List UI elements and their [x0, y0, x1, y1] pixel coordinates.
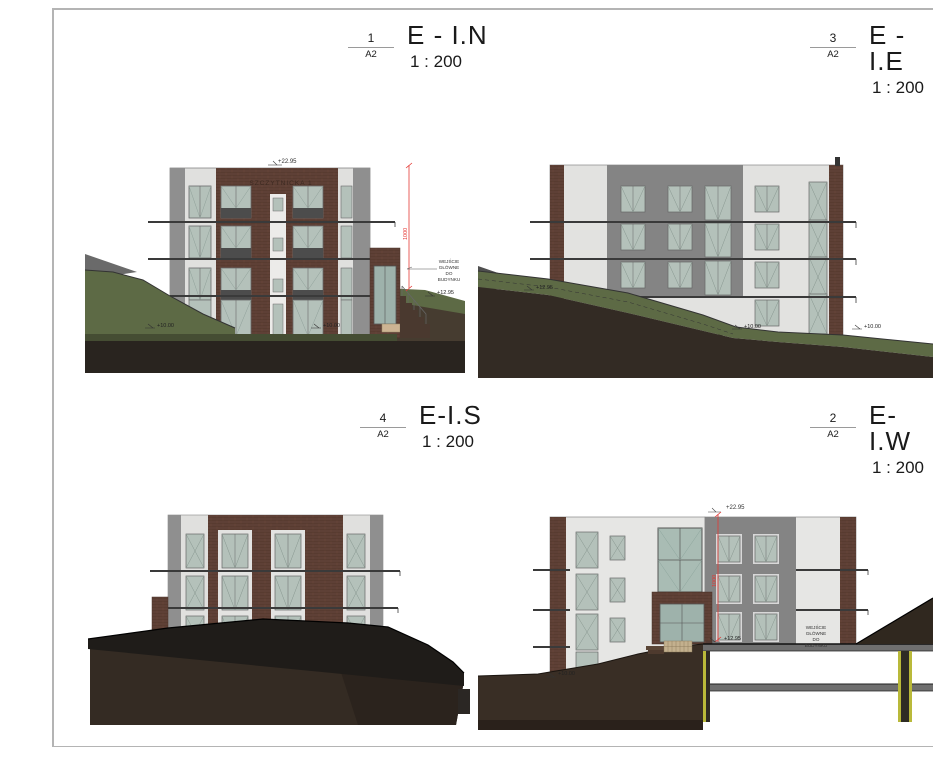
- retaining-block: [458, 689, 470, 714]
- view-title-text: E - I.N: [407, 22, 488, 48]
- level-marker-ground-right: +10.00: [323, 323, 340, 329]
- view-ref-east: 3 A2: [810, 31, 856, 60]
- view-ref-west: 2 A2: [810, 411, 856, 440]
- view-title-text: E - I.E: [869, 22, 933, 74]
- entrance-note-line: BUDYNKU: [805, 643, 827, 648]
- view-ref-divider: [810, 427, 856, 428]
- view-ref-north: 1 A2: [348, 31, 394, 60]
- elevation-south-view: [88, 498, 473, 738]
- view-ref-sheet: A2: [365, 49, 377, 60]
- elevation-east-drawing: +12.95 +10.00 +10.00: [478, 138, 933, 378]
- entrance-note-line: WEJŚCIE: [806, 623, 826, 630]
- level-marker-entrance: +12.95: [724, 636, 741, 642]
- sheet-frame-left: [52, 8, 54, 747]
- title-block-east: 3 A2 E - I.E 1 : 200: [810, 22, 933, 97]
- level-marker-ground-left: +10.00: [157, 323, 174, 329]
- view-ref-number: 1: [368, 31, 375, 45]
- level-marker-top: +22.95: [278, 159, 297, 165]
- level-marker-ground-left: +10.00: [558, 671, 575, 677]
- level-marker-terrace: +12.95: [536, 285, 553, 291]
- elevation-east-view: +12.95 +10.00 +10.00: [478, 138, 933, 383]
- level-marker-ground-right: +10.00: [864, 324, 881, 330]
- elevation-west-drawing: +22.95 1000 +12.95 WEJŚCIE GŁÓWNE DO BUD…: [478, 492, 933, 747]
- view-ref-divider: [360, 427, 406, 428]
- view-title-text: E-I.S: [419, 402, 482, 428]
- stairwell-glazing: [658, 528, 702, 592]
- title-block-west: 2 A2 E-I.W 1 : 200: [810, 402, 933, 477]
- view-title-text: E-I.W: [869, 402, 933, 454]
- dimension-1000: 1000: [712, 575, 718, 587]
- elevation-west-view: +22.95 1000 +12.95 WEJŚCIE GŁÓWNE DO BUD…: [478, 492, 933, 752]
- view-ref-divider: [810, 47, 856, 48]
- view-ref-sheet: A2: [377, 429, 389, 440]
- entrance-note-line: DO: [813, 637, 820, 642]
- view-ref-sheet: A2: [827, 49, 839, 60]
- view-ref-divider: [348, 47, 394, 48]
- elevation-south-drawing: [88, 498, 473, 733]
- garage-section: [703, 644, 933, 722]
- level-marker-ground-mid: +10.00: [744, 324, 761, 330]
- entrance-annex-north: [370, 248, 400, 338]
- view-scale-text: 1 : 200: [872, 459, 933, 477]
- chimney-block: [152, 597, 168, 630]
- title-block-south: 4 A2 E-I.S 1 : 200: [360, 402, 482, 451]
- view-scale-text: 1 : 200: [872, 79, 933, 97]
- title-block-north: 1 A2 E - I.N 1 : 200: [348, 22, 488, 71]
- terrain-right-west: [856, 598, 933, 644]
- dimension-1000: 1000: [403, 228, 409, 240]
- view-ref-number: 4: [380, 411, 387, 425]
- view-ref-number: 2: [830, 411, 837, 425]
- sheet-frame-top: [52, 8, 933, 10]
- entrance-note-line: BUDYNKU: [438, 277, 460, 282]
- drawing-sheet: 1 A2 E - I.N 1 : 200 3 A2 E - I.E 1 : 20…: [0, 0, 933, 768]
- entrance-note-line: GŁÓWNE: [439, 264, 459, 270]
- entrance-note-line: GŁÓWNE: [806, 630, 826, 636]
- view-scale-text: 1 : 200: [422, 433, 482, 451]
- view-ref-sheet: A2: [827, 429, 839, 440]
- elevation-north-view: SZCZYTNICKA 1: [85, 138, 465, 378]
- level-marker-entrance: +12.95: [437, 290, 454, 296]
- view-ref-south: 4 A2: [360, 411, 406, 440]
- entrance-note-line: DO: [446, 271, 453, 276]
- level-marker-top: +22.95: [726, 505, 745, 511]
- entrance-portal-west: [652, 592, 712, 644]
- elevation-north-drawing: SZCZYTNICKA 1: [85, 138, 465, 373]
- view-scale-text: 1 : 200: [410, 53, 488, 71]
- view-ref-number: 3: [830, 31, 837, 45]
- entrance-note-line: WEJŚCIE: [439, 257, 459, 264]
